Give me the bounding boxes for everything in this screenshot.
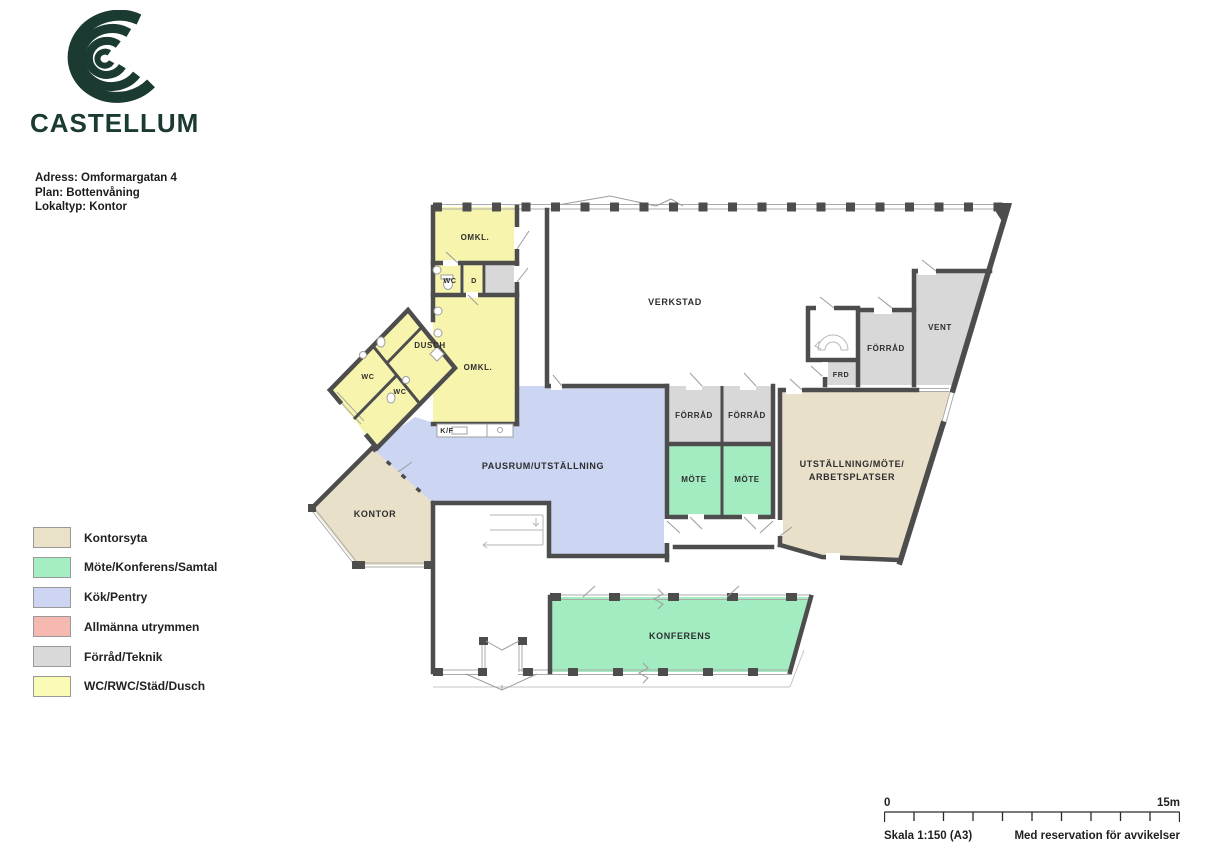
room-label-wc-top: WC <box>443 276 456 285</box>
scale-start: 0 <box>884 797 890 811</box>
room-teknik-small <box>486 263 517 295</box>
room-label-forrad-1: FÖRRÅD <box>675 411 713 420</box>
room-label-kontor: KONTOR <box>354 509 396 519</box>
room-label-forrad-3: FÖRRÅD <box>867 344 905 353</box>
scale-end: 15m <box>1157 797 1180 811</box>
room-label-omkl-main: OMKL. <box>464 363 493 372</box>
room-label-d: D <box>471 276 477 285</box>
scale-ruler <box>884 811 1180 823</box>
stairs <box>483 515 543 548</box>
room-label-wc-a: WC <box>361 372 374 381</box>
room-label-frd: FRD <box>833 370 850 379</box>
room-label-konferens: KONFERENS <box>649 631 711 641</box>
room-label-forrad-2: FÖRRÅD <box>728 411 766 420</box>
spiral-stair <box>815 335 848 350</box>
scale-disclaimer: Med reservation för avvikelser <box>1014 830 1180 842</box>
room-label-vent: VENT <box>928 323 952 332</box>
room-label-mote-1: MÖTE <box>681 475 707 484</box>
room-label-omkl-top: OMKL. <box>461 233 490 242</box>
room-label-verkstad: VERKSTAD <box>648 297 702 307</box>
room-label-wc-b: WC <box>393 387 406 396</box>
floorplan-page: CASTELLUM Adress: Omformargatan 4 Plan: … <box>0 0 1220 863</box>
room-label-mote-2: MÖTE <box>734 475 760 484</box>
scale-bar: 0 15m Skala 1:150 (A3) Med reservation f… <box>884 797 1180 845</box>
room-label-dusch: DUSCH <box>414 341 445 350</box>
room-vent <box>914 271 990 385</box>
floor-plan: OMKL. WC D OMKL. DUSCH WC WC K/F VERKSTA… <box>0 0 1220 863</box>
room-label-utstallning-2: ARBETSPLATSER <box>809 472 895 482</box>
room-label-pausrum: PAUSRUM/UTSTÄLLNING <box>482 461 604 471</box>
scale-text: Skala 1:150 (A3) <box>884 830 972 842</box>
room-label-kf: K/F <box>440 426 453 435</box>
room-label-utstallning-1: UTSTÄLLNING/MÖTE/ <box>800 459 905 469</box>
